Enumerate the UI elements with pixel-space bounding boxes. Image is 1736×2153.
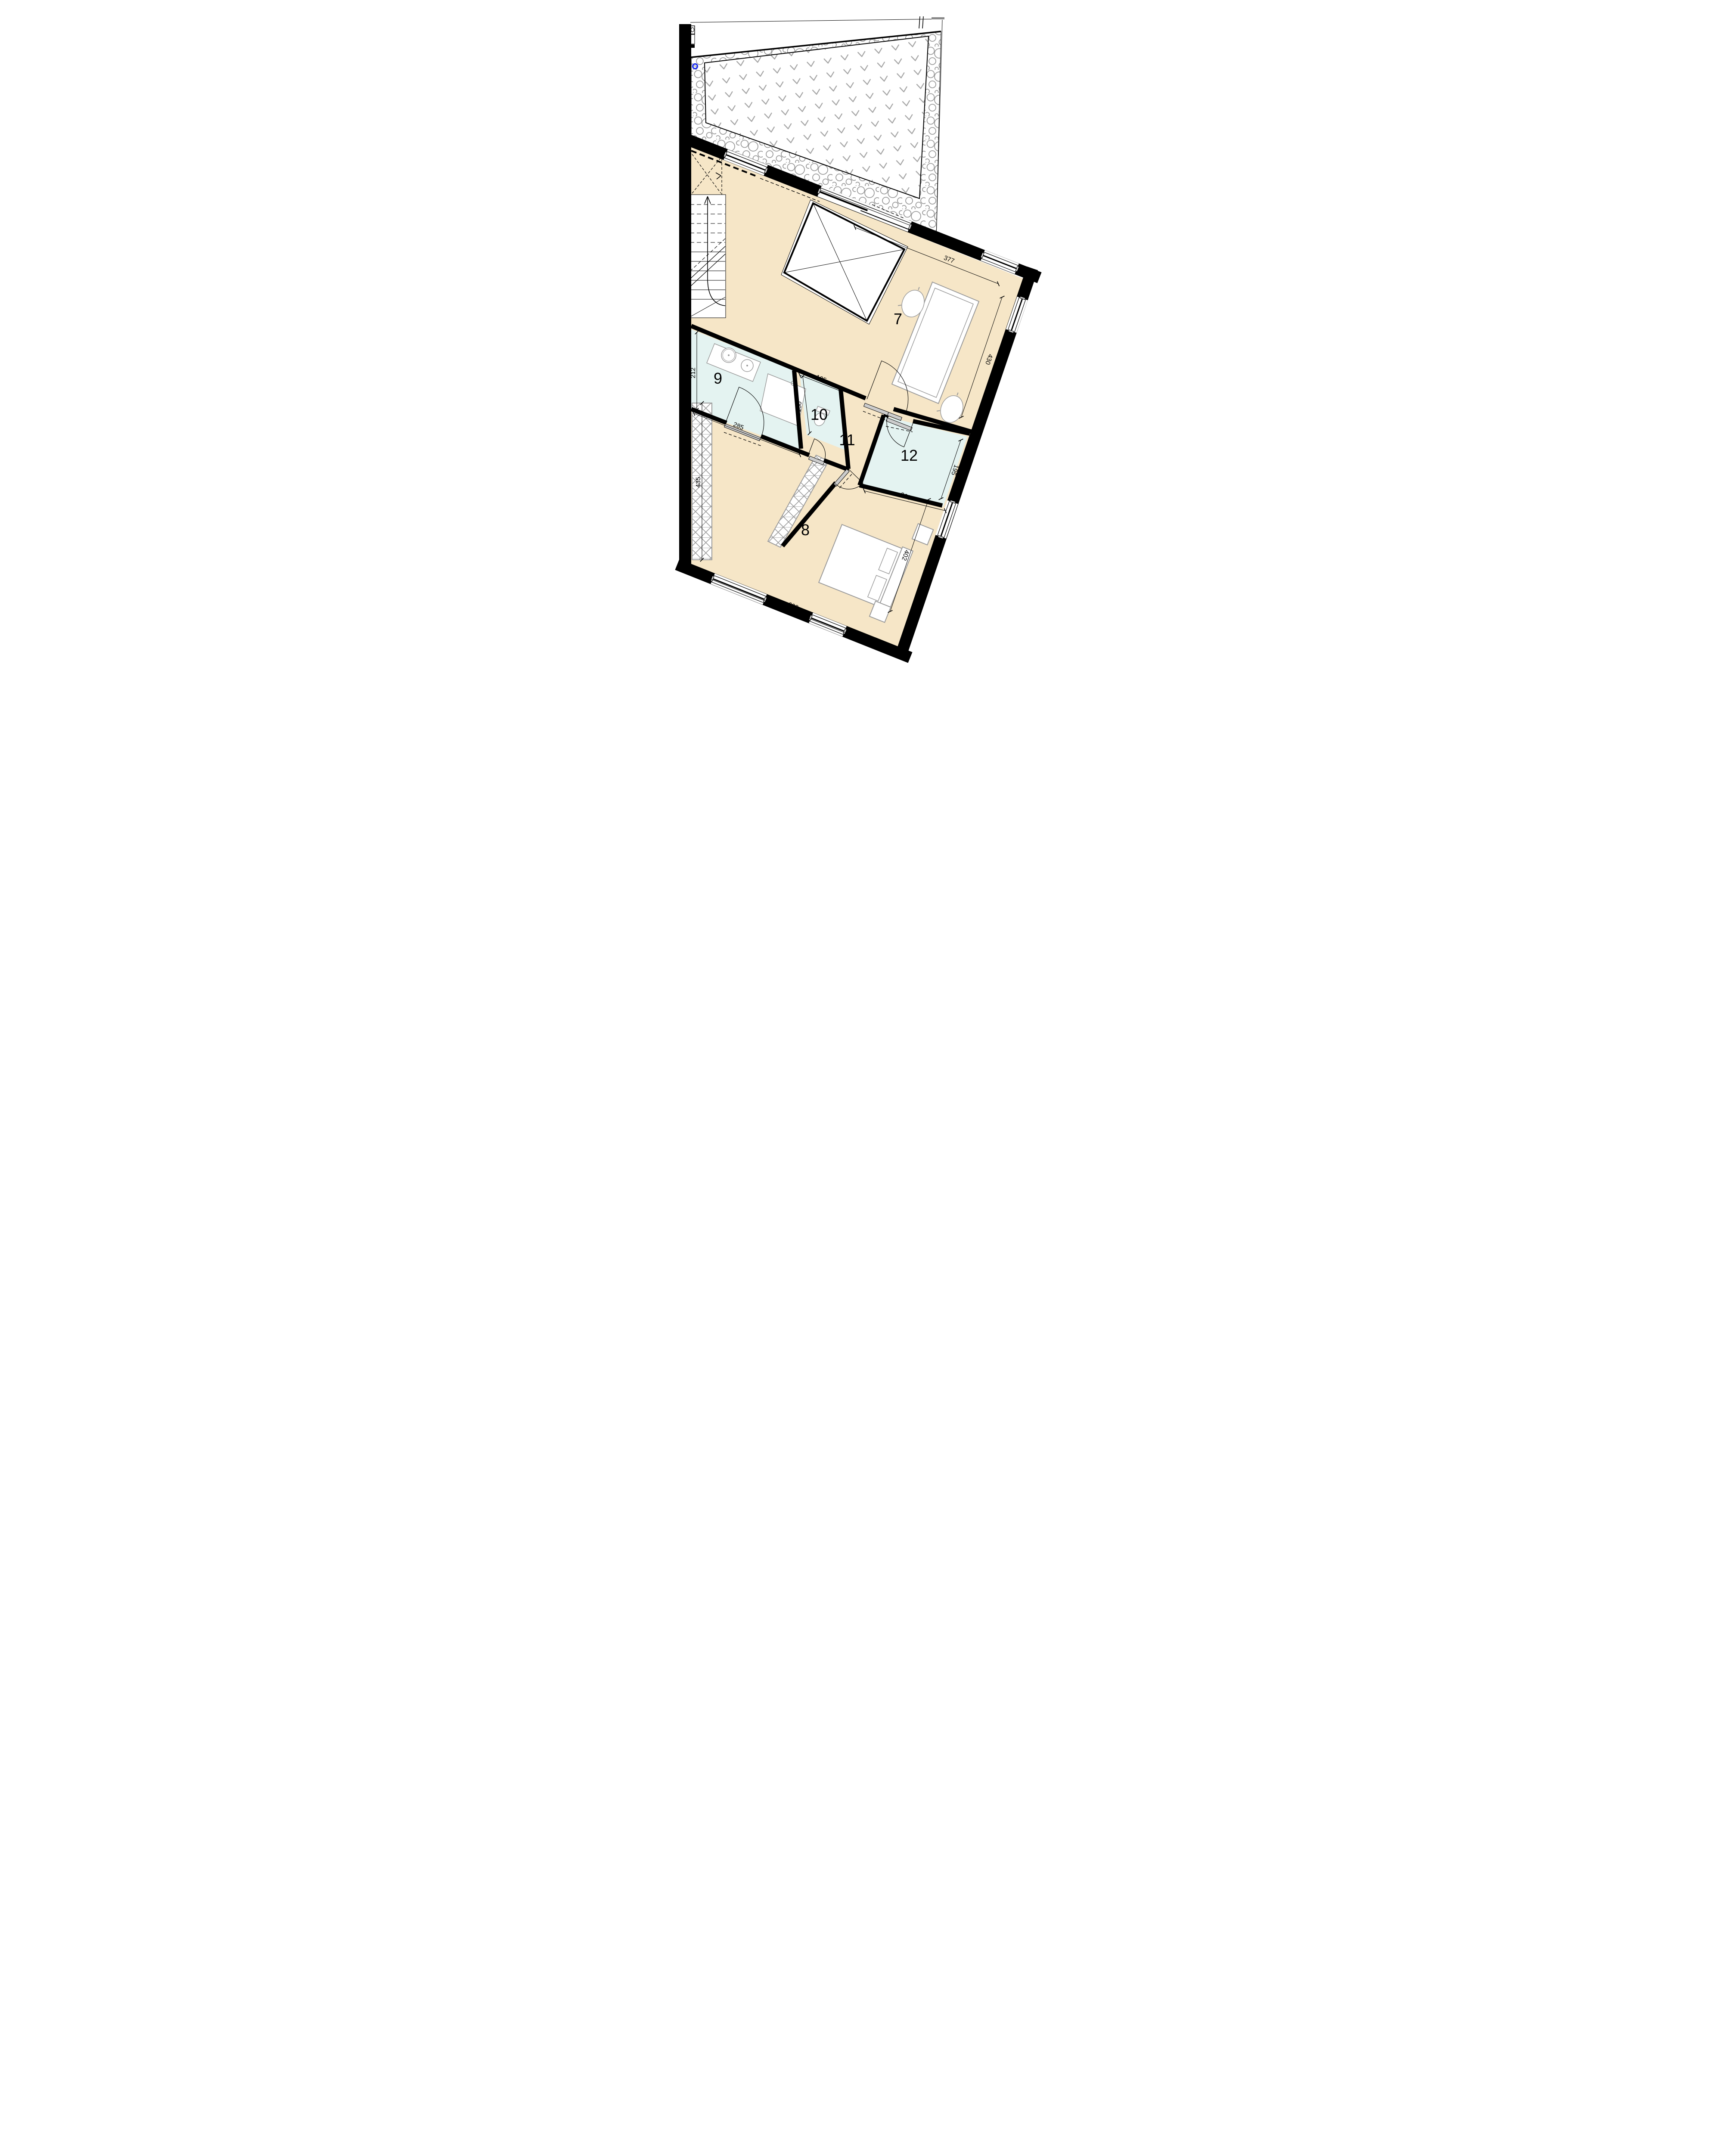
floor-plan-page: 377 430 212 285 105 150 [670, 0, 1067, 683]
room-label-8: 8 [801, 521, 809, 539]
dim-text-150: 150 [795, 401, 803, 412]
floor-plan-svg: 377 430 212 285 105 150 [670, 0, 1067, 683]
dim-text-212: 212 [689, 367, 697, 378]
boundary-gray-bar [932, 17, 944, 19]
room-label-7: 7 [893, 310, 902, 328]
room-label-11: 11 [839, 431, 855, 449]
stairs [689, 195, 726, 318]
room-label-10: 10 [810, 406, 827, 423]
dim-text-435: 435 [695, 477, 702, 487]
room-label-12: 12 [900, 447, 917, 464]
room-label-9: 9 [713, 369, 722, 387]
